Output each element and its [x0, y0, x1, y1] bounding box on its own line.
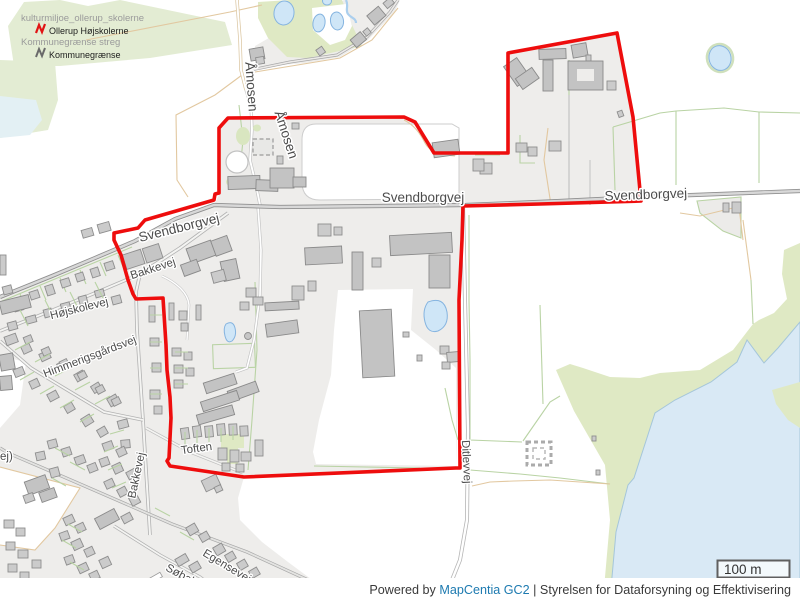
svg-text:ej): ej) [0, 451, 13, 463]
svg-text:kulturmiljoe_ollerup_skolerne: kulturmiljoe_ollerup_skolerne [21, 13, 144, 24]
svg-text:Ollerup Højskolerne: Ollerup Højskolerne [49, 26, 129, 36]
svg-text:100 m: 100 m [724, 562, 762, 577]
svg-text:Svendborgvej: Svendborgvej [382, 190, 465, 205]
svg-text:Kommunegrænse streg: Kommunegrænse streg [21, 37, 120, 48]
svg-text:Kommunegrænse: Kommunegrænse [49, 50, 121, 60]
svg-text:Powered by MapCentia GC2 | Sty: Powered by MapCentia GC2 | Styrelsen for… [369, 583, 791, 597]
svg-text:Ditlevvej: Ditlevvej [459, 440, 473, 484]
svg-text:Svendborgvej: Svendborgvej [604, 186, 687, 204]
